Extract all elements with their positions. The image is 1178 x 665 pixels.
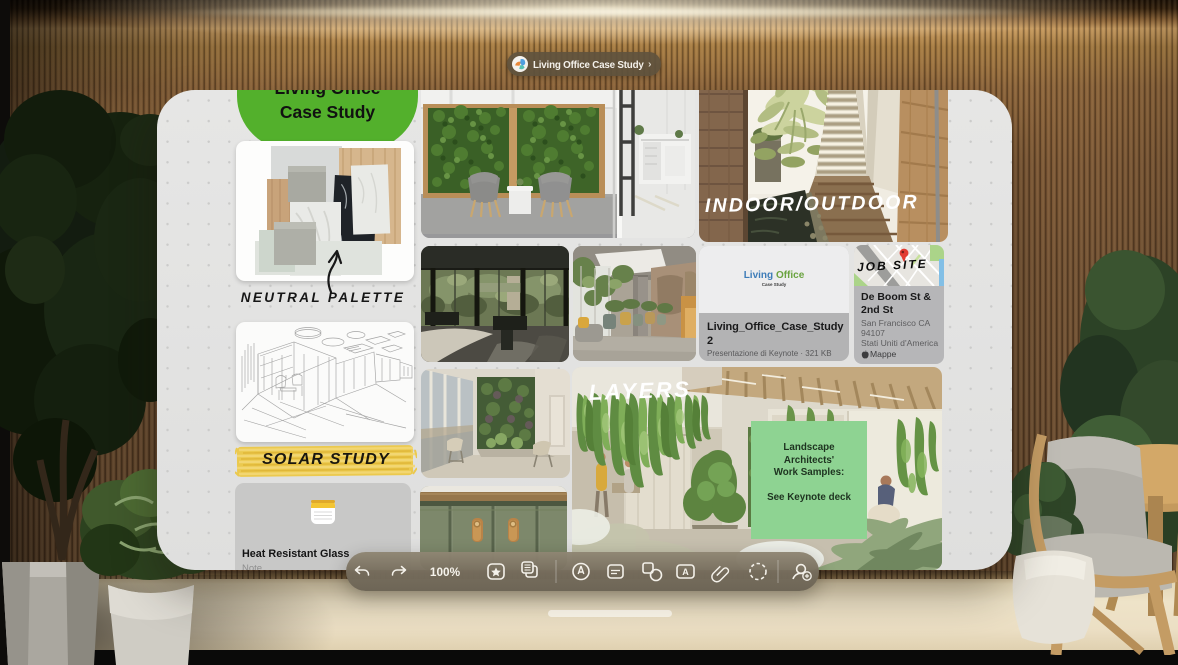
svg-text:A: A [682, 567, 689, 577]
svg-text:100%: 100% [430, 565, 461, 579]
svg-text:INDOOR/OUTDOOR: INDOOR/OUTDOOR [705, 191, 919, 217]
svg-text:LAYERS: LAYERS [588, 376, 691, 405]
